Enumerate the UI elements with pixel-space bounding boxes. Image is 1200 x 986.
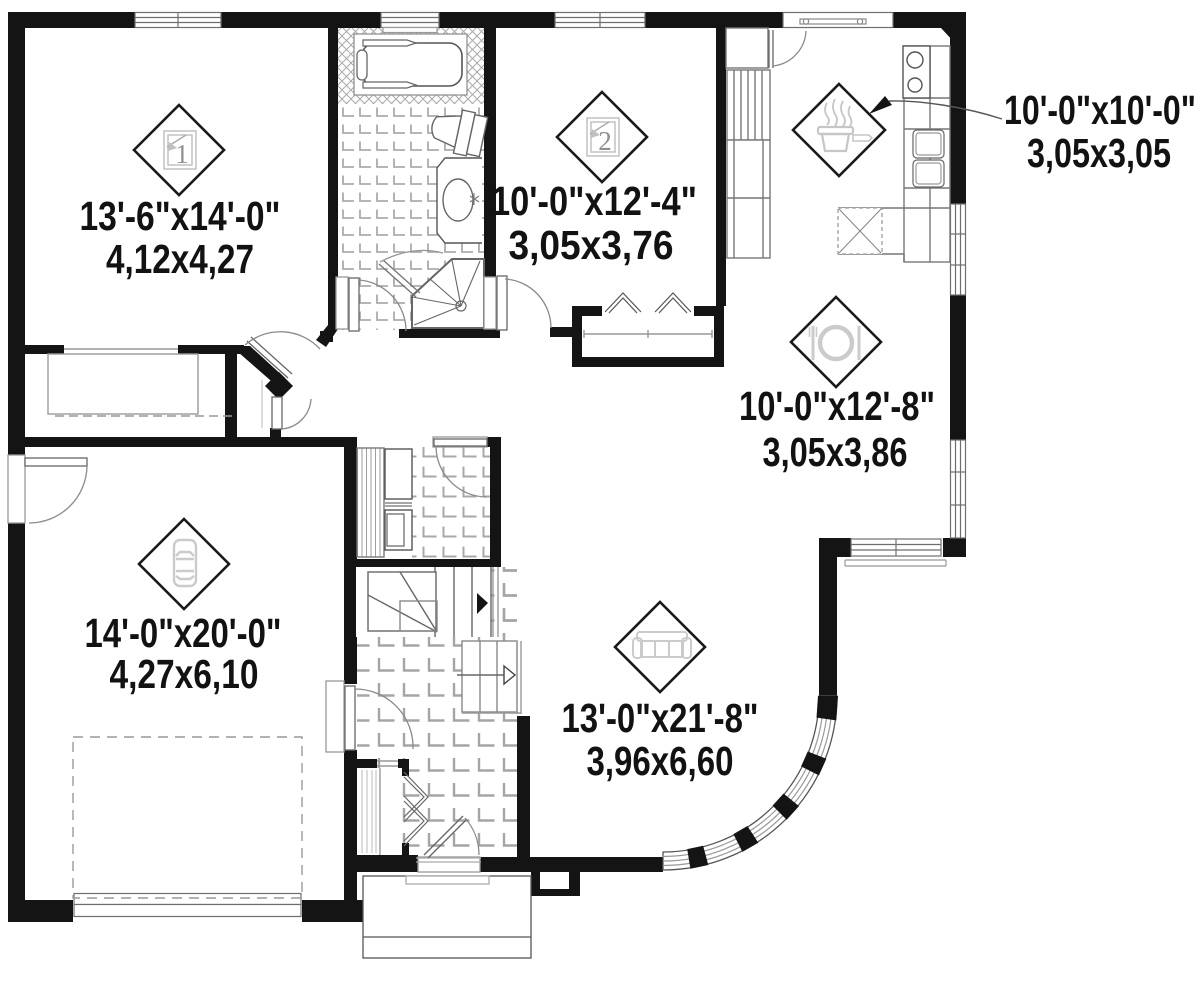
svg-text:3,96x6,60: 3,96x6,60	[587, 738, 734, 784]
svg-text:3,05x3,86: 3,05x3,86	[763, 429, 908, 475]
svg-text:4,27x6,10: 4,27x6,10	[110, 651, 259, 697]
svg-text:1: 1	[175, 139, 189, 169]
svg-text:3,05x3,76: 3,05x3,76	[509, 222, 674, 268]
svg-text:3,05x3,05: 3,05x3,05	[1027, 130, 1171, 176]
svg-text:13'-6"x14'-0": 13'-6"x14'-0"	[80, 193, 281, 239]
svg-text:14'-0"x20'-0": 14'-0"x20'-0"	[85, 610, 282, 656]
svg-text:4,12x4,27: 4,12x4,27	[106, 236, 254, 282]
svg-text:13'-0"x21'-8": 13'-0"x21'-8"	[562, 695, 759, 741]
svg-text:10'-0"x10'-0": 10'-0"x10'-0"	[1004, 87, 1196, 133]
svg-text:10'-0"x12'-4": 10'-0"x12'-4"	[491, 178, 697, 224]
svg-text:2: 2	[598, 126, 612, 156]
svg-text:10'-0"x12'-8": 10'-0"x12'-8"	[739, 383, 935, 429]
